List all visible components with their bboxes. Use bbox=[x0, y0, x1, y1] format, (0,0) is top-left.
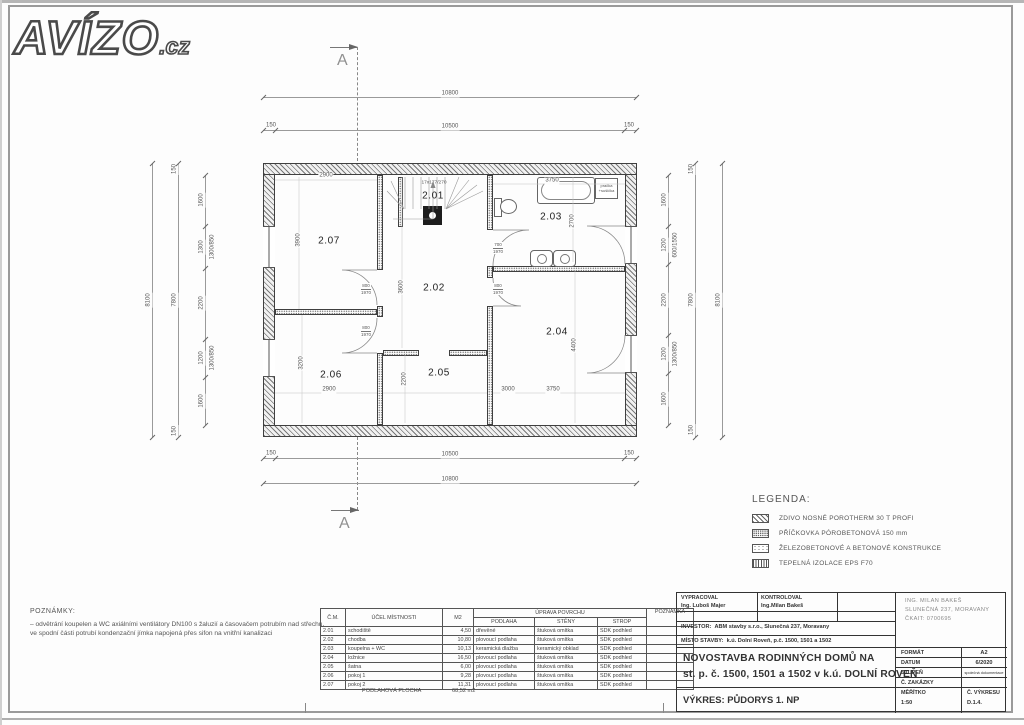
avizo-logo: AVÍZO.cz bbox=[14, 8, 190, 76]
cell: 2.02 bbox=[321, 636, 346, 645]
table-row: 2.04ložnice16,50plovoucí podlahaštuková … bbox=[321, 654, 694, 663]
divider bbox=[677, 647, 1007, 648]
dim-top-overall: 10800 bbox=[441, 91, 460, 98]
col-surface: ÚPRAVA POVRCHU bbox=[474, 609, 647, 618]
legend-swatch-prickovka bbox=[752, 529, 769, 538]
dim-right-seg: 1600 bbox=[662, 391, 669, 406]
door-height: 1970 bbox=[361, 332, 371, 337]
section-flag-icon bbox=[350, 507, 359, 513]
cell: schodiště bbox=[346, 627, 443, 636]
investor-row: INVESTOR: ABM stavby s.r.o., Slunečná 23… bbox=[681, 624, 829, 630]
dim-right-overall: 8100 bbox=[716, 292, 723, 307]
legend-title: LEGENDA: bbox=[752, 494, 811, 505]
legend-item: ŽELEZOBETONOVÉ A BETONOVÉ KONSTRUKCE bbox=[779, 545, 941, 552]
cvykresu-value: D.1.4. bbox=[967, 700, 982, 706]
logo-suffix: .cz bbox=[159, 33, 190, 59]
cell: SDK podhled bbox=[598, 681, 647, 690]
stamp-name: ING. MILAN BAKEŠ bbox=[905, 597, 989, 606]
cell: SDK podhled bbox=[598, 654, 647, 663]
door-label: 8001970 bbox=[493, 283, 503, 295]
vypracoval-label: VYPRACOVAL bbox=[681, 595, 718, 601]
room-label-207: 2.07 bbox=[318, 236, 340, 247]
divider bbox=[837, 593, 838, 621]
stair-label: 17x177/270 bbox=[421, 181, 446, 186]
table-header-row: Č.M. ÚČEL MÍSTNOSTI M2 ÚPRAVA POVRCHU PO… bbox=[321, 609, 694, 618]
cell: plovoucí podlaha bbox=[474, 636, 535, 645]
cell: štuková omítka bbox=[535, 672, 598, 681]
frame-tick bbox=[305, 703, 306, 713]
room-label-203: 2.03 bbox=[540, 212, 562, 223]
dim-right-offset-bottom: 150 bbox=[689, 424, 696, 436]
cell: 10,13 bbox=[443, 645, 474, 654]
cell: štuková omítka bbox=[535, 636, 598, 645]
logo-text: AVÍZO bbox=[14, 11, 159, 64]
divider bbox=[677, 687, 1007, 688]
cell: 6,00 bbox=[443, 663, 474, 672]
dim-bottom-overall: 10800 bbox=[441, 477, 460, 484]
vykres-title: VÝKRES: PŮDORYS 1. NP bbox=[683, 694, 799, 705]
col-floor: PODLAHA bbox=[474, 618, 535, 627]
dim-204-width: 3750 bbox=[545, 387, 560, 394]
dim-207-height: 3900 bbox=[296, 232, 303, 247]
cell: SDK podhled bbox=[598, 627, 647, 636]
dim-204-height: 4400 bbox=[572, 337, 579, 352]
table-row: 2.03koupelna + WC10,13keramická dlažbake… bbox=[321, 645, 694, 654]
section-cut-line bbox=[357, 47, 358, 161]
dim-205-width: 3000 bbox=[500, 387, 515, 394]
legend-item: ZDIVO NOSNÉ POROTHERM 30 T PROFI bbox=[779, 515, 914, 522]
dim-206-width: 2900 bbox=[321, 387, 336, 394]
dim-203-height: 2700 bbox=[570, 213, 577, 228]
col-cm: Č.M. bbox=[321, 609, 346, 627]
cell: štuková omítka bbox=[535, 654, 598, 663]
notes-title: POZNÁMKY: bbox=[30, 608, 75, 615]
col-ceiling: STROP bbox=[598, 618, 647, 627]
kontroloval-value: Ing.Milan Bakeš bbox=[761, 603, 803, 609]
format-label: FORMÁT bbox=[901, 650, 924, 656]
col-purpose: ÚČEL MÍSTNOSTI bbox=[346, 609, 443, 627]
divider bbox=[677, 635, 895, 636]
table-footer-value: 68,52 m2 bbox=[452, 688, 475, 694]
dim-right-seg: 1200 bbox=[662, 346, 669, 361]
cell: 2.07 bbox=[321, 681, 346, 690]
room-label-205: 2.05 bbox=[428, 368, 450, 379]
dim-left-seg: 1600 bbox=[199, 192, 206, 207]
cell: plovoucí podlaha bbox=[474, 654, 535, 663]
cell: šatna bbox=[346, 663, 443, 672]
table-row: 2.06pokoj 19,28plovoucí podlahaštuková o… bbox=[321, 672, 694, 681]
room-label-202: 2.02 bbox=[423, 283, 445, 294]
dim-left-overall: 8100 bbox=[146, 292, 153, 307]
cvykresu-label: Č. VÝKRESU bbox=[967, 690, 1000, 696]
datum-label: DATUM bbox=[901, 660, 920, 666]
section-letter-top: A bbox=[337, 52, 348, 70]
col-m2: M2 bbox=[443, 609, 474, 627]
cell: koupelna + WC bbox=[346, 645, 443, 654]
cell: plovoucí podlaha bbox=[474, 681, 535, 690]
misto-label: MÍSTO STAVBY: bbox=[681, 638, 723, 644]
cell: štuková omítka bbox=[535, 681, 598, 690]
project-title-line2: st. p. č. 1500, 1501 a 1502 v k.ú. DOLNÍ… bbox=[683, 669, 918, 680]
frame-tick bbox=[663, 703, 664, 713]
cell: ložnice bbox=[346, 654, 443, 663]
misto-value: k.ú. Dolní Roveň, p.č. 1500, 1501 a 1502 bbox=[727, 638, 832, 644]
dim-right-seg: 2200 bbox=[662, 292, 669, 307]
room-label-206: 2.06 bbox=[320, 370, 342, 381]
room-label-204: 2.04 bbox=[546, 327, 568, 338]
room-table: Č.M. ÚČEL MÍSTNOSTI M2 ÚPRAVA POVRCHU PO… bbox=[320, 608, 694, 690]
table-row: 2.01schodiště4,50dřevěnéštuková omítkaSD… bbox=[321, 627, 694, 636]
vypracoval-value: Ing. Luboš Majer bbox=[681, 603, 725, 609]
dim-left-seg: 1300 bbox=[199, 239, 206, 254]
dim-left-seg: 2200 bbox=[199, 295, 206, 310]
stamp-address: SLUNEČNÁ 237, MORAVANY bbox=[905, 606, 989, 615]
meritko-value: 1:50 bbox=[901, 700, 912, 706]
cell: plovoucí podlaha bbox=[474, 663, 535, 672]
investor-value: ABM stavby s.r.o., Slunečná 237, Moravan… bbox=[714, 624, 829, 630]
plan-linework bbox=[263, 163, 637, 437]
divider bbox=[895, 593, 896, 713]
door-height: 1970 bbox=[361, 290, 371, 295]
room-label-201: 2.01 bbox=[422, 191, 444, 202]
cell: 2.01 bbox=[321, 627, 346, 636]
dim-207-width: 2900 bbox=[318, 173, 333, 180]
dim-left-inner: 7800 bbox=[172, 292, 179, 307]
kontroloval-label: KONTROLOVAL bbox=[761, 595, 802, 601]
project-title-line1: NOVOSTAVBA RODINNÝCH DOMŮ NA bbox=[683, 653, 875, 664]
stupen-label: STUPEŇ bbox=[901, 670, 923, 676]
cell: 2.03 bbox=[321, 645, 346, 654]
dim-right-inner: 7800 bbox=[689, 292, 696, 307]
divider bbox=[895, 657, 1007, 658]
table-footer-label: PODLAHOVÁ PLOCHA bbox=[362, 688, 421, 694]
cell: dřevěné bbox=[474, 627, 535, 636]
dim-202-height: 3600 bbox=[399, 279, 406, 294]
stamp-ckait: ČKAIT: 0700695 bbox=[905, 615, 989, 624]
cell: SDK podhled bbox=[598, 672, 647, 681]
table-row: 2.05šatna6,00plovoucí podlahaštuková omí… bbox=[321, 663, 694, 672]
zakazka-label: Č. ZAKÁZKY bbox=[901, 680, 934, 686]
cell: 2.06 bbox=[321, 672, 346, 681]
cell: 10,80 bbox=[443, 636, 474, 645]
divider bbox=[757, 593, 758, 621]
cell: 2.04 bbox=[321, 654, 346, 663]
legend-item: PŘÍČKOVKA PÓROBETONOVÁ 150 mm bbox=[779, 530, 908, 537]
dim-203-width: 3750 bbox=[544, 178, 559, 185]
legend-item: TEPELNÁ IZOLACE EPS F70 bbox=[779, 560, 873, 567]
legend-swatch-izolace bbox=[752, 559, 769, 568]
dim-left-seg: 1200 bbox=[199, 350, 206, 365]
title-block: VYPRACOVAL Ing. Luboš Majer KONTROLOVAL … bbox=[676, 592, 1006, 712]
door-label: 7001970 bbox=[493, 242, 503, 254]
sheet-edge-top bbox=[0, 0, 1024, 3]
legend-swatch-zelezobeton bbox=[752, 544, 769, 553]
engineer-stamp: ING. MILAN BAKEŠ SLUNEČNÁ 237, MORAVANY … bbox=[905, 597, 989, 624]
dim-left-seg: 1600 bbox=[199, 393, 206, 408]
door-label: 8001970 bbox=[361, 325, 371, 337]
door-label: 8001970 bbox=[361, 283, 371, 295]
dim-bottom-inner: 10500 bbox=[441, 452, 460, 459]
section-letter-bottom: A bbox=[339, 515, 350, 533]
dim-right-seg: 1600 bbox=[662, 192, 669, 207]
cell: 16,50 bbox=[443, 654, 474, 663]
cell: štuková omítka bbox=[535, 627, 598, 636]
door-height: 1970 bbox=[493, 290, 503, 295]
dim-window-size: 1300/850 bbox=[210, 233, 217, 260]
sheet-edge-bottom bbox=[0, 718, 1024, 720]
notes-body: – odvětrání koupelen a WC axiálními vent… bbox=[30, 620, 330, 638]
dim-window-size: 1300/850 bbox=[673, 340, 680, 367]
cell: pokoj 1 bbox=[346, 672, 443, 681]
sheet-edge-left bbox=[0, 0, 2, 725]
cell: keramický obklad bbox=[535, 645, 598, 654]
divider bbox=[677, 621, 895, 622]
format-value: A2 bbox=[965, 650, 1003, 656]
table-row: 2.02chodba10,80plovoucí podlahaštuková o… bbox=[321, 636, 694, 645]
cell: chodba bbox=[346, 636, 443, 645]
dim-right-seg: 1200 bbox=[662, 237, 669, 252]
dim-window-size: 600/1550 bbox=[673, 231, 680, 258]
drawing-sheet: AVÍZO.cz A A pračka+sušička bbox=[0, 0, 1024, 725]
dim-top-inner: 10500 bbox=[441, 124, 460, 131]
meritko-label: MĚŘÍTKO bbox=[901, 690, 926, 696]
section-cut-line bbox=[357, 437, 358, 510]
investor-label: INVESTOR: bbox=[681, 624, 711, 630]
dim-left-offset-bottom: 150 bbox=[172, 425, 179, 437]
dim-window-size: 1300/850 bbox=[210, 344, 217, 371]
dim-205-height: 2200 bbox=[402, 371, 409, 386]
misto-row: MÍSTO STAVBY: k.ú. Dolní Roveň, p.č. 150… bbox=[681, 638, 831, 644]
cell: štuková omítka bbox=[535, 663, 598, 672]
dim-206-height: 3200 bbox=[299, 355, 306, 370]
cell: SDK podhled bbox=[598, 636, 647, 645]
legend-swatch-porotherm bbox=[752, 514, 769, 523]
datum-value: 6/2020 bbox=[965, 660, 1003, 666]
door-height: 1970 bbox=[493, 249, 503, 254]
cell: plovoucí podlaha bbox=[474, 672, 535, 681]
cell: keramická dlažba bbox=[474, 645, 535, 654]
cell: SDK podhled bbox=[598, 645, 647, 654]
col-walls: STĚNY bbox=[535, 618, 598, 627]
divider bbox=[961, 647, 962, 713]
cell: SDK podhled bbox=[598, 663, 647, 672]
divider bbox=[895, 667, 1007, 668]
cell: 2.05 bbox=[321, 663, 346, 672]
divider bbox=[677, 611, 895, 612]
cell: 4,50 bbox=[443, 627, 474, 636]
stupen-value: společná dokumentace bbox=[963, 671, 1005, 675]
cell: 9,28 bbox=[443, 672, 474, 681]
